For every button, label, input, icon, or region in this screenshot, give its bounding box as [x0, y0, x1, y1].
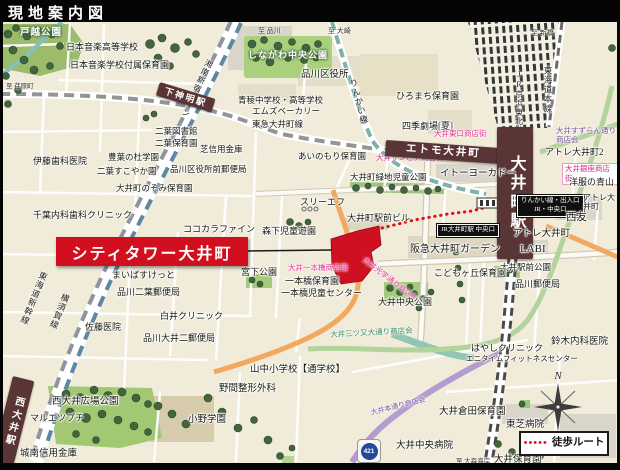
label-ryokuchi-park: 大井町緑地児童公園	[350, 172, 427, 182]
title-bar: 現地案内図	[0, 0, 620, 22]
label-ipponbashi-hoikuen: 一本橋保育園	[285, 276, 339, 287]
legend-label: 徒歩ルート	[552, 438, 605, 449]
label-futaba-library: 二葉図書館	[155, 126, 198, 136]
label-oi-higashiguchi-st: 大井東口商店街	[434, 130, 487, 139]
label-atre-oimachi: アトレ大井町	[513, 229, 570, 240]
label-morishita-park: 森下児童遊園	[262, 226, 316, 237]
label-togoshi-park: 戸越公園	[20, 28, 62, 39]
label-to-ebaramachi: 至 荏原町	[6, 83, 34, 91]
label-kurata-hoikuen: 大井倉田保育園	[439, 407, 506, 418]
label-seiyu: 西友	[566, 212, 587, 224]
label-shinagawa-post: 品川郵便局	[515, 279, 560, 290]
label-shinagawa-ward-office: 品川区役所	[301, 70, 349, 81]
label-oi-chuo-hospital: 大井中央病院	[396, 441, 453, 452]
label-ono-gakuen: 小野学園	[188, 415, 226, 426]
label-ekimae-bldg: 大井町駅前ビル	[347, 213, 410, 224]
label-miyashita-park: 宮下公園	[241, 267, 277, 278]
site-guide-map: 戸越公園日本音楽高等学校日本音楽学校付属保育園湘南新宿ライン至 品川至 大崎至 …	[0, 0, 620, 470]
label-jr-keihin-tohoku-line: JR京浜東北線	[514, 70, 523, 135]
label-chiba-clinic: 千葉内科歯科クリニック	[33, 210, 132, 221]
label-noma-seikei: 野間整形外科	[219, 384, 276, 395]
label-futaba-hoikuen: 二葉保育園	[155, 138, 198, 148]
legend-walk-route: ••••• 徒歩ルート	[519, 431, 609, 456]
label-cocokara: ココカラファイン	[183, 224, 255, 235]
label-oi2-post: 品川大井二郵便局	[143, 333, 215, 344]
label-nihon-ongaku-hs: 日本音楽高等学校	[66, 42, 138, 53]
label-maibasuketto: まいばすけっと	[112, 270, 175, 281]
frame-left	[0, 22, 3, 470]
label-shinagawa-chuo-park: しながわ中央公園	[248, 50, 328, 61]
label-mitsumata-st: 大井三ツ又大通り商店会	[330, 327, 413, 340]
label-aoyama: 洋服の青山	[569, 177, 614, 188]
route-421-shield: 421	[357, 439, 381, 463]
label-sato-clinic: 佐藤医院	[85, 322, 121, 333]
compass-rose: N	[531, 373, 585, 431]
label-yamanaka-es: 山中小学校【通学校】	[250, 365, 345, 376]
label-ainomori-hoikuen: あいのもり保育園	[298, 151, 366, 161]
page-title: 現地案内図	[8, 2, 108, 23]
label-kodomogaoka-hoikuen: こどもヶ丘保育園	[434, 268, 506, 279]
label-labi: LABI	[520, 243, 546, 256]
label-ito-dental: 伊藤歯科医院	[33, 156, 87, 167]
label-hayashi-clinic: はやしクリニック	[471, 343, 543, 354]
label-suzuki-clinic: 鈴木内科医院	[551, 337, 608, 348]
label-three-f: スリーエフ	[300, 197, 345, 208]
label-maruetsu-petit: マルエツプチ	[30, 413, 84, 424]
compass-north-label: N	[554, 370, 561, 382]
label-to-shimbashi: 至 新橋	[531, 29, 554, 37]
label-hoyo-gakuen: 豊葉の杜学園	[108, 152, 159, 162]
label-ms-bakery: エムズベーカリー	[252, 106, 320, 116]
site-banner: シティタワー大井町	[56, 237, 248, 266]
label-hankyu-garden: 阪急大井町ガーデン	[410, 244, 500, 256]
map-labels-layer: 戸越公園日本音楽高等学校日本音楽学校付属保育園湘南新宿ライン至 品川至 大崎至 …	[0, 0, 620, 470]
label-to-shinagawa: 至 品川	[258, 27, 281, 35]
label-nishioi-hiroba-park: 西大井広場公園	[52, 397, 119, 408]
route-421-number: 421	[361, 443, 378, 460]
site-banner-label: シティタワー大井町	[71, 240, 232, 264]
label-tokaido-main-line: 東海道本線	[543, 66, 553, 114]
label-oi-hondori-st: 大井本通り商店会	[370, 395, 426, 417]
label-ito-yokado: イトーヨーカドー	[440, 169, 516, 180]
label-shinkansen: 東海道新幹線	[19, 270, 50, 327]
label-shiba-shinkin: 芝信用金庫	[200, 144, 243, 154]
label-oi-suzuran-st: 大井すずらん通り 商店会	[556, 127, 616, 145]
compass-star-icon	[533, 383, 583, 431]
frame-bottom	[0, 463, 620, 470]
label-futaba-sukoyaka: 二葉すこやか園	[97, 166, 157, 176]
label-nozomi-hoikuen: 大井町のぞみ保育園	[116, 183, 193, 193]
label-oi-chuo-park: 大井中央公園	[378, 297, 432, 308]
label-yokosuka-line: 横須賀線	[48, 292, 72, 331]
label-ipponbashi-st: 大井一本橋商店街	[288, 264, 348, 273]
label-futaba-post: 品川二葉郵便局	[117, 287, 180, 298]
label-tokyu-oimachi-line: 東急大井町線	[252, 119, 303, 129]
label-atre-oimachi-2: アトレ大井町2	[545, 147, 604, 158]
label-rinkai-line: りんかい線	[348, 77, 370, 125]
label-ipponbashi-center: 一本橋児童センター	[281, 288, 362, 299]
label-hiromachi-hoikuen: ひろまち保育園	[396, 91, 459, 102]
label-ekimae-park: 大井駅前公園	[500, 262, 551, 272]
label-shirai-clinic: 白井クリニック	[160, 311, 223, 322]
label-to-osaki: 至 大崎	[328, 27, 351, 35]
label-atre-oimachi-east: アトレ大井町	[583, 193, 620, 212]
label-ward-office-post: 品川区役所前郵便局	[170, 164, 247, 174]
badge-jr-chuo-exit: JR大井町駅 中央口	[437, 224, 499, 237]
label-jonan-shinkin: 城南信用金庫	[20, 449, 77, 460]
label-nihon-ongaku-hoikuen: 日本音楽学校付属保育園	[70, 60, 169, 71]
walk-route-dots-icon: •••••	[524, 438, 548, 449]
label-anytime-fitness: エニタイムフィットネスセンター	[466, 355, 578, 364]
label-seiryo-school: 青稜中学校・高等学校	[238, 95, 323, 105]
